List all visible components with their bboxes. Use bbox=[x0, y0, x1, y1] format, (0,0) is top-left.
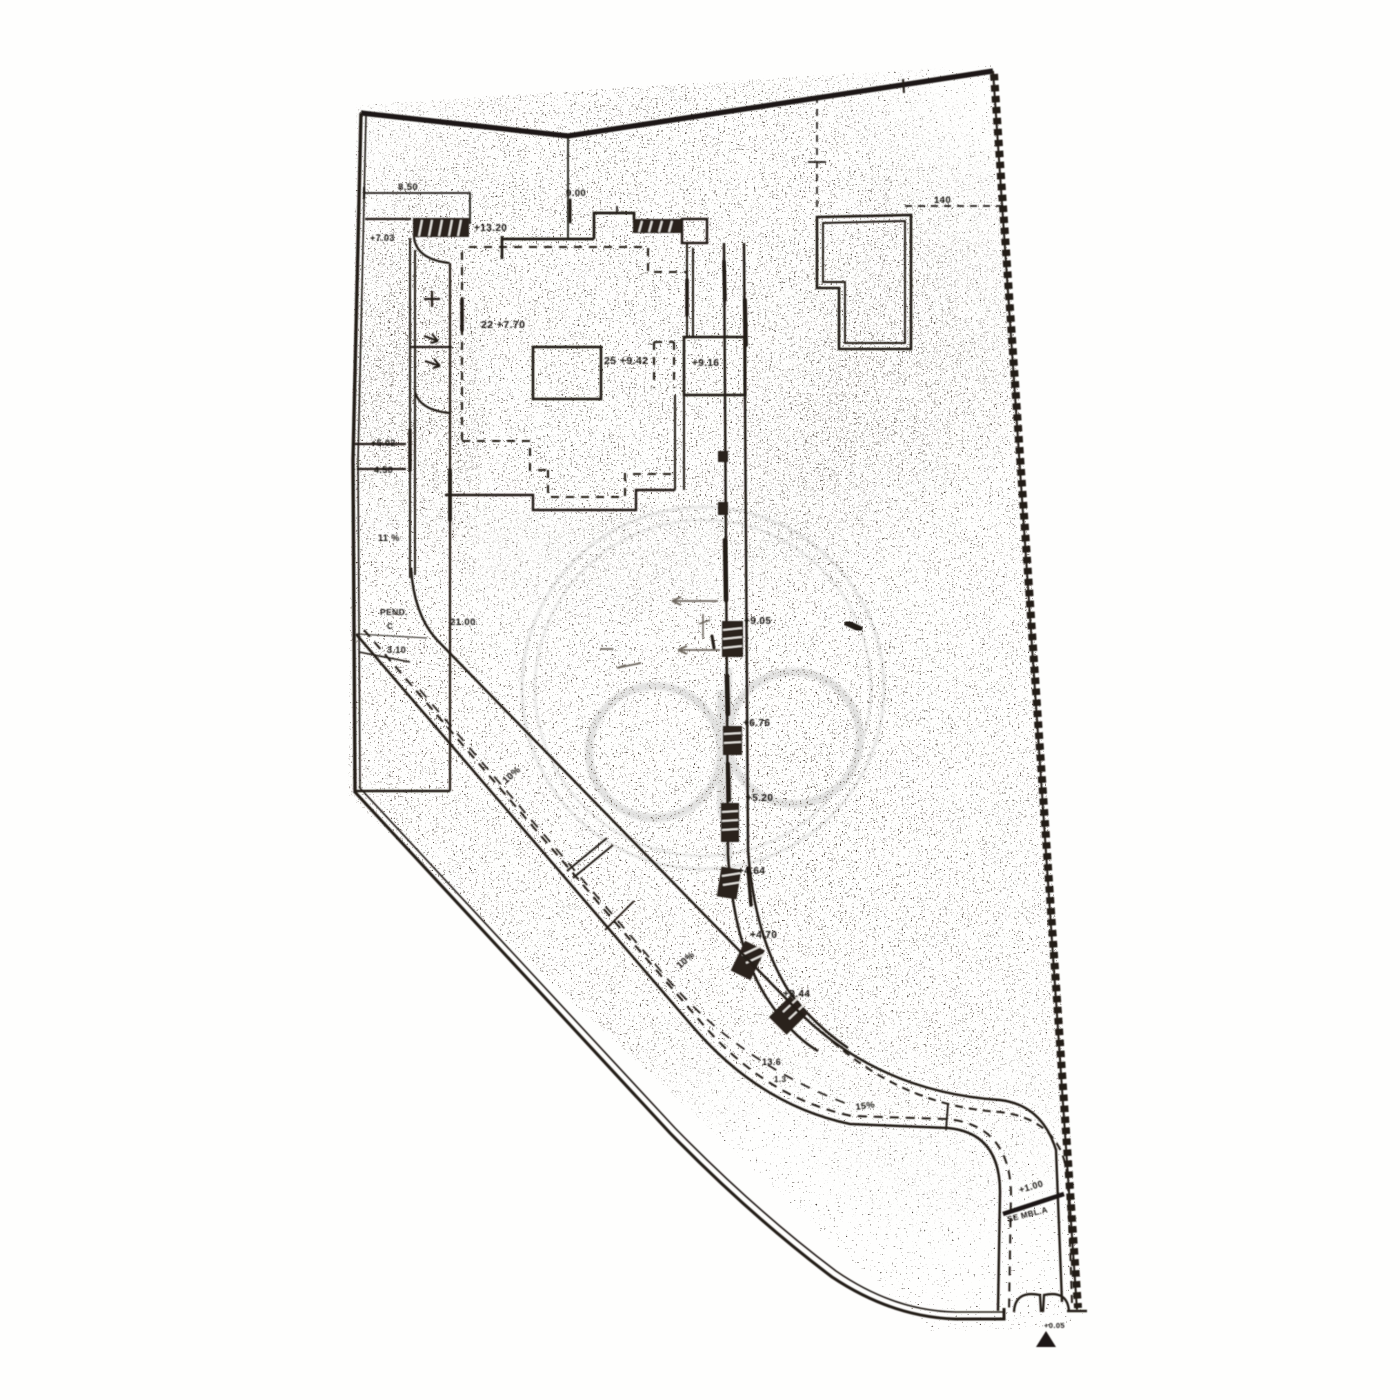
svg-text:8.50: 8.50 bbox=[398, 182, 418, 193]
svg-text:+4.70: +4.70 bbox=[750, 930, 777, 941]
svg-text:+5.02: +5.02 bbox=[371, 438, 396, 448]
svg-text:+9.16: +9.16 bbox=[692, 358, 719, 369]
svg-text:140: 140 bbox=[934, 195, 951, 206]
svg-text:+13.20: +13.20 bbox=[474, 223, 507, 234]
svg-text:22 +7.70: 22 +7.70 bbox=[481, 319, 525, 331]
svg-text:+4.64: +4.64 bbox=[738, 866, 765, 877]
svg-text:13.6: 13.6 bbox=[762, 1057, 781, 1067]
svg-text:C: C bbox=[387, 622, 393, 631]
svg-text:21.00: 21.00 bbox=[450, 617, 476, 628]
svg-text:3.10: 3.10 bbox=[387, 645, 406, 655]
svg-text:25 +9.42: 25 +9.42 bbox=[604, 355, 648, 367]
svg-text:+7.03: +7.03 bbox=[370, 233, 395, 243]
svg-text:+0.05: +0.05 bbox=[1044, 1321, 1065, 1330]
svg-text:+9.05: +9.05 bbox=[744, 616, 771, 627]
svg-text:4.50: 4.50 bbox=[374, 465, 393, 475]
svg-text:PEND.: PEND. bbox=[380, 607, 408, 617]
svg-text:9.00: 9.00 bbox=[566, 188, 586, 199]
svg-text:1.3: 1.3 bbox=[774, 1075, 786, 1084]
svg-text:+3.44: +3.44 bbox=[783, 989, 810, 1000]
svg-text:11 %: 11 % bbox=[378, 533, 400, 543]
svg-text:+6.76: +6.76 bbox=[743, 718, 770, 729]
svg-text:+5.20: +5.20 bbox=[746, 793, 773, 804]
